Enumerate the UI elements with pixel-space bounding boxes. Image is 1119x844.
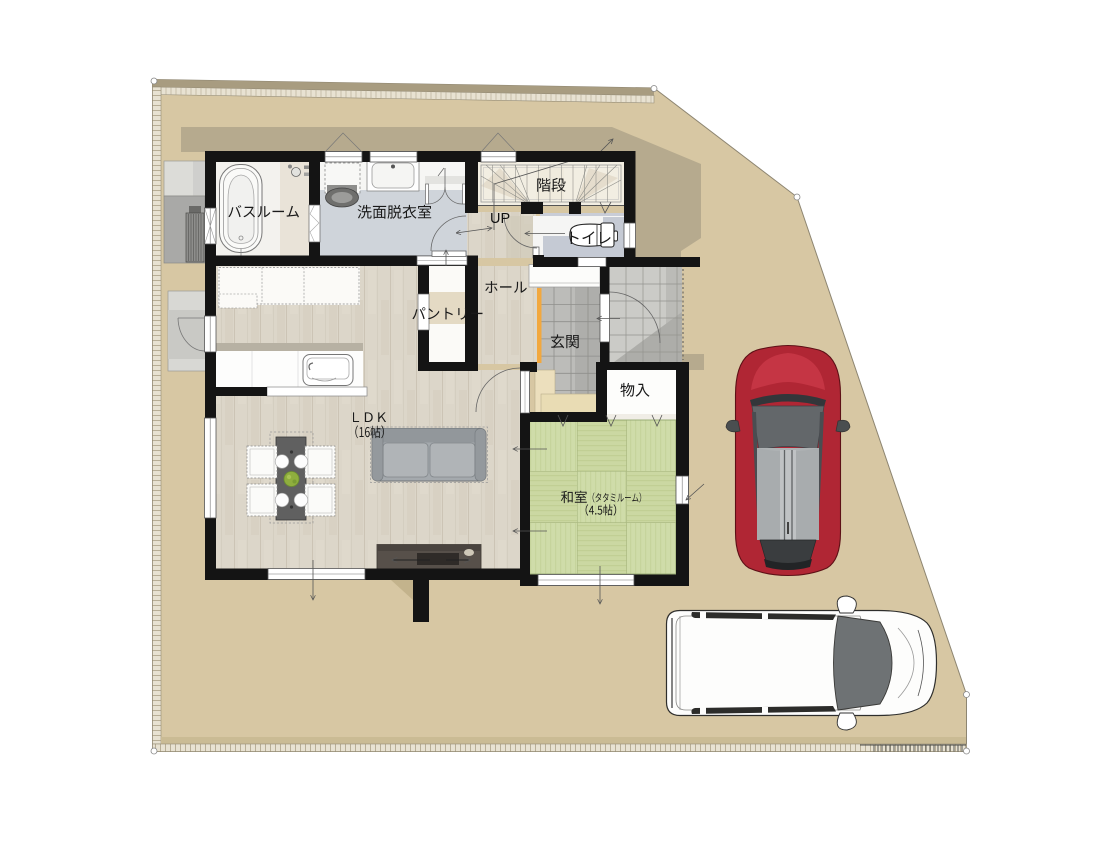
svg-text:UP: UP <box>490 211 510 227</box>
